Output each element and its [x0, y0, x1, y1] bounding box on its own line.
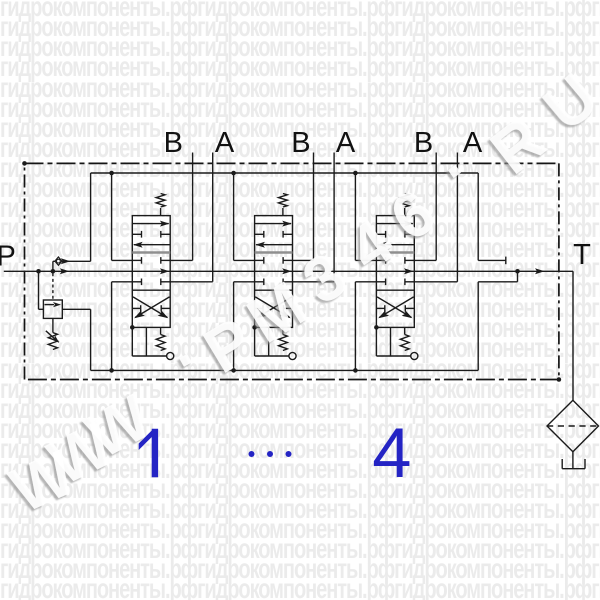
svg-text:A: A [215, 127, 235, 159]
svg-text:T: T [573, 239, 591, 271]
svg-text:4: 4 [372, 413, 411, 492]
svg-text:U: U [530, 60, 600, 145]
svg-text:A: A [336, 127, 356, 159]
svg-text:B: B [291, 127, 310, 159]
svg-text:R: R [477, 102, 558, 187]
svg-text:P: P [0, 241, 16, 273]
svg-text:B: B [164, 127, 183, 159]
